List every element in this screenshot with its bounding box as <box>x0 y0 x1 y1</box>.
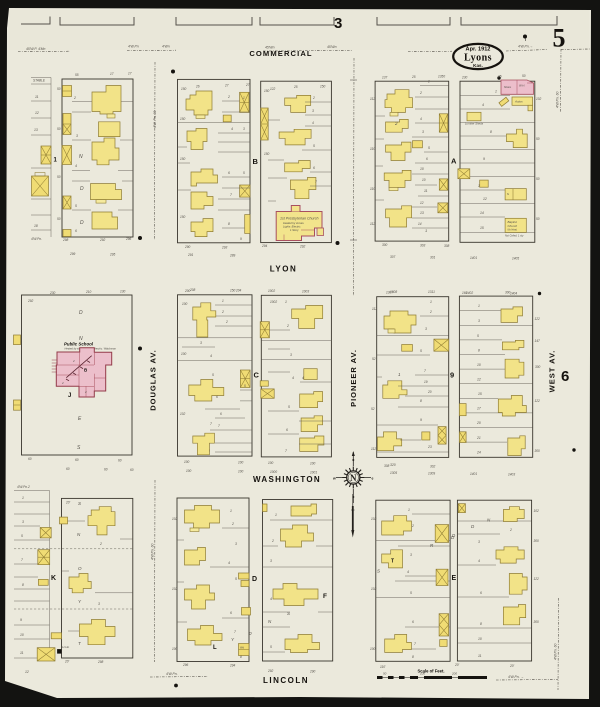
svg-text:N: N <box>79 154 83 160</box>
svg-text:e: e <box>372 477 374 481</box>
svg-text:2: 2 <box>429 310 432 314</box>
svg-text:4: 4 <box>478 559 480 563</box>
svg-text:3: 3 <box>243 127 245 131</box>
svg-text:B: B <box>253 157 259 166</box>
svg-text:3: 3 <box>76 134 78 138</box>
svg-text:6: 6 <box>228 171 230 175</box>
svg-text:45'W.P. 4'Mn: 45'W.P. 4'Mn <box>26 47 45 51</box>
svg-text:110: 110 <box>370 187 375 191</box>
svg-text:Lt.Ho: Lt.Ho <box>62 645 70 649</box>
svg-text:8: 8 <box>490 130 492 134</box>
svg-text:5: 5 <box>212 373 214 377</box>
svg-text:300: 300 <box>535 365 541 369</box>
svg-text:112: 112 <box>370 222 375 226</box>
svg-text:1000: 1000 <box>270 470 277 474</box>
svg-text:3: 3 <box>22 520 24 524</box>
svg-text:112: 112 <box>372 307 377 311</box>
svg-text:1002: 1002 <box>268 289 275 293</box>
svg-text:50: 50 <box>536 217 540 221</box>
svg-text:5: 5 <box>477 334 479 338</box>
svg-text:1: 1 <box>22 496 24 500</box>
svg-text:294: 294 <box>261 244 268 248</box>
svg-text:122: 122 <box>534 577 540 581</box>
svg-text:300: 300 <box>534 539 540 543</box>
svg-text:1st Presbyterian Church: 1st Presbyterian Church <box>280 217 319 221</box>
svg-text:4: 4 <box>420 117 422 121</box>
svg-text:2: 2 <box>227 95 230 99</box>
svg-text:300: 300 <box>382 243 388 247</box>
svg-text:5: 5 <box>313 144 315 148</box>
svg-text:6: 6 <box>412 620 414 624</box>
svg-text:208: 208 <box>189 288 196 292</box>
svg-text:122: 122 <box>535 399 541 403</box>
svg-text:8: 8 <box>412 655 414 659</box>
svg-text:DOUGLAS AV.: DOUGLAS AV. <box>149 349 158 411</box>
svg-text:PIONEER AV.: PIONEER AV. <box>349 349 358 407</box>
svg-text:45'Wn: 45'Wn <box>265 46 275 50</box>
svg-text:Church: Church <box>508 224 518 228</box>
svg-text:1: 1 <box>425 228 427 233</box>
svg-text:3: 3 <box>422 130 424 134</box>
svg-text:308: 308 <box>384 464 390 468</box>
svg-text:24: 24 <box>476 451 481 455</box>
svg-text:1: 1 <box>230 509 232 513</box>
svg-text:102: 102 <box>371 517 377 521</box>
svg-text:12: 12 <box>483 197 487 201</box>
svg-text:4: 4 <box>210 354 212 358</box>
svg-text:102: 102 <box>371 587 377 591</box>
svg-text:50: 50 <box>522 74 526 78</box>
svg-text:7: 7 <box>230 193 232 197</box>
svg-text:1: 1 <box>478 304 480 308</box>
svg-text:150: 150 <box>264 152 270 156</box>
svg-text:50: 50 <box>57 127 61 131</box>
svg-text:3: 3 <box>200 341 202 345</box>
svg-text:296: 296 <box>182 663 189 667</box>
svg-text:1350: 1350 <box>438 75 445 79</box>
svg-text:1002: 1002 <box>270 300 277 304</box>
svg-text:11: 11 <box>20 651 24 655</box>
svg-text:50: 50 <box>57 217 61 221</box>
svg-text:1311: 1311 <box>428 290 435 294</box>
svg-text:8: 8 <box>228 222 230 226</box>
svg-text:11: 11 <box>424 189 428 193</box>
svg-text:STABLE: STABLE <box>33 79 46 83</box>
svg-text:1308: 1308 <box>390 290 397 294</box>
svg-text:100: 100 <box>420 672 425 676</box>
svg-text:6: 6 <box>286 428 288 432</box>
svg-text:3: 3 <box>478 319 480 323</box>
svg-text:T: T <box>391 559 394 565</box>
svg-text:100: 100 <box>310 462 316 466</box>
svg-text:COMMERCIAL: COMMERCIAL <box>249 49 312 58</box>
svg-text:60: 60 <box>28 457 32 461</box>
svg-text:298: 298 <box>97 660 104 664</box>
svg-text:1: 1 <box>408 508 410 512</box>
svg-text:8: 8 <box>22 583 24 587</box>
svg-text:302: 302 <box>430 465 436 469</box>
svg-text:130: 130 <box>120 290 126 294</box>
svg-text:60: 60 <box>118 459 122 463</box>
svg-text:2: 2 <box>84 390 87 394</box>
svg-text:1: 1 <box>495 90 497 94</box>
svg-text:11: 11 <box>478 654 482 658</box>
svg-text:Not Ceiled. 1 sty: Not Ceiled. 1 sty <box>505 235 524 238</box>
svg-text:LINCOLN: LINCOLN <box>263 676 309 685</box>
svg-text:4'W. Pn. 60: 4'W. Pn. 60 <box>153 111 157 128</box>
svg-text:10: 10 <box>477 363 481 367</box>
svg-text:137: 137 <box>382 76 388 80</box>
svg-text:2: 2 <box>286 324 289 328</box>
svg-text:D: D <box>252 576 257 583</box>
svg-text:50: 50 <box>57 175 61 179</box>
svg-text:230: 230 <box>49 291 56 295</box>
svg-text:6: 6 <box>313 166 315 170</box>
svg-text:7: 7 <box>21 558 23 562</box>
svg-text:50: 50 <box>536 177 540 181</box>
svg-text:1: 1 <box>243 96 245 100</box>
svg-text:6: 6 <box>220 412 222 416</box>
svg-text:4'W.Pn.: 4'W.Pn. <box>31 237 42 241</box>
svg-text:4: 4 <box>302 376 304 380</box>
svg-text:204: 204 <box>235 289 242 293</box>
svg-text:50: 50 <box>383 672 387 676</box>
svg-text:Autos: Autos <box>514 100 523 104</box>
svg-text:No Heat.: No Heat. <box>508 229 518 232</box>
svg-text:4'W.Pn.: 4'W.Pn. <box>166 672 178 676</box>
svg-text:4'W.Pn. →: 4'W.Pn. → <box>508 675 524 679</box>
svg-text:2: 2 <box>225 320 228 324</box>
svg-text:W.H.: W.H. <box>519 84 525 88</box>
svg-text:6: 6 <box>480 591 482 595</box>
svg-text:1 Story: 1 Story <box>290 228 299 232</box>
svg-text:5: 5 <box>428 146 430 150</box>
svg-text:3: 3 <box>410 553 412 557</box>
svg-text:150: 150 <box>230 289 236 293</box>
svg-text:7: 7 <box>285 449 287 453</box>
svg-text:L: L <box>213 645 217 651</box>
svg-text:F: F <box>323 593 327 600</box>
svg-text:12: 12 <box>35 111 39 115</box>
svg-text:303: 303 <box>420 244 426 248</box>
svg-text:S: S <box>78 501 81 506</box>
svg-text:60: 60 <box>104 468 108 472</box>
svg-text:25: 25 <box>411 75 416 79</box>
svg-text:E: E <box>452 575 457 582</box>
svg-text:15: 15 <box>478 392 482 396</box>
svg-text:Kas.: Kas. <box>473 63 483 68</box>
svg-text:20': 20' <box>509 664 515 668</box>
svg-text:1405: 1405 <box>512 257 519 261</box>
svg-text:150: 150 <box>180 215 186 219</box>
svg-text:50: 50 <box>57 87 61 91</box>
svg-text:4: 4 <box>292 376 294 380</box>
svg-text:27: 27 <box>245 83 250 87</box>
svg-text:55: 55 <box>75 73 79 77</box>
svg-text:WEST AV.: WEST AV. <box>548 350 557 393</box>
svg-text:5: 5 <box>244 384 246 388</box>
svg-text:20': 20' <box>454 663 460 667</box>
svg-text:4'W.Pn. 60: 4'W.Pn. 60 <box>151 544 155 560</box>
svg-text:5: 5 <box>21 534 23 538</box>
svg-text:150: 150 <box>320 85 326 89</box>
svg-text:18: 18 <box>34 224 38 228</box>
svg-text:20': 20' <box>65 501 71 505</box>
svg-text:5: 5 <box>288 405 290 409</box>
svg-text:100: 100 <box>182 302 188 306</box>
svg-text:A: A <box>451 157 457 166</box>
svg-text:150: 150 <box>264 89 270 93</box>
svg-text:2: 2 <box>72 359 75 363</box>
svg-text:102: 102 <box>180 412 186 416</box>
svg-text:300: 300 <box>534 620 540 624</box>
svg-text:N: N <box>350 473 357 483</box>
svg-text:J: J <box>68 393 71 399</box>
svg-text:112: 112 <box>371 447 376 451</box>
svg-text:1: 1 <box>275 513 277 517</box>
svg-text:25: 25 <box>497 75 502 79</box>
svg-text:15: 15 <box>480 226 484 230</box>
svg-text:4'W.Pn.→: 4'W.Pn.→ <box>518 45 533 49</box>
svg-text:1404: 1404 <box>510 292 517 296</box>
svg-text:1: 1 <box>285 300 287 304</box>
svg-text:4: 4 <box>228 561 230 565</box>
svg-text:5: 5 <box>75 204 77 208</box>
svg-text:100: 100 <box>184 460 190 464</box>
svg-text:S: S <box>377 569 380 574</box>
svg-text:1001: 1001 <box>310 471 317 475</box>
svg-text:147: 147 <box>535 339 541 343</box>
svg-text:50: 50 <box>536 137 540 141</box>
svg-text:Lyons: Lyons <box>464 53 492 64</box>
svg-text:200: 200 <box>451 672 457 676</box>
svg-text:1401: 1401 <box>470 472 477 476</box>
svg-text:4'Wn: 4'Wn <box>162 45 170 49</box>
svg-text:13: 13 <box>34 128 38 132</box>
svg-text:9: 9 <box>483 157 485 161</box>
svg-text:150: 150 <box>180 157 186 161</box>
svg-text:150: 150 <box>181 87 187 91</box>
svg-text:291: 291 <box>187 253 194 257</box>
svg-text:210: 210 <box>85 290 92 294</box>
svg-text:10: 10 <box>478 637 482 641</box>
svg-text:Lumber Sheds: Lumber Sheds <box>465 122 484 126</box>
svg-text:Public School: Public School <box>64 342 94 347</box>
svg-text:102: 102 <box>536 97 542 101</box>
svg-text:4: 4 <box>312 121 314 125</box>
svg-text:3: 3 <box>290 353 292 357</box>
svg-text:1: 1 <box>428 80 430 84</box>
svg-text:14: 14 <box>418 222 422 226</box>
svg-text:308: 308 <box>444 244 450 248</box>
svg-text:2: 2 <box>231 522 234 526</box>
svg-text:1003: 1003 <box>302 290 309 294</box>
svg-text:C: C <box>254 371 260 380</box>
svg-text:4'W.Pn. 60: 4'W.Pn. 60 <box>556 92 560 108</box>
svg-text:6: 6 <box>230 611 232 615</box>
svg-text:O: O <box>78 566 82 571</box>
svg-text:110': 110' <box>380 665 386 669</box>
svg-text:290: 290 <box>309 670 316 674</box>
svg-text:52: 52 <box>372 357 376 361</box>
svg-text:10: 10 <box>20 633 24 637</box>
svg-text:2: 2 <box>221 310 224 314</box>
svg-text:1: 1 <box>222 299 224 303</box>
svg-text:w: w <box>332 477 336 481</box>
svg-text:1309: 1309 <box>428 472 435 476</box>
svg-text:7: 7 <box>315 180 317 184</box>
svg-text:3: 3 <box>478 540 480 544</box>
svg-text:122: 122 <box>535 317 541 321</box>
svg-text:5: 5 <box>235 577 237 581</box>
svg-text:20: 20 <box>427 390 432 394</box>
svg-text:4: 4 <box>407 570 409 574</box>
svg-text:6: 6 <box>561 368 569 385</box>
svg-text:307: 307 <box>390 255 396 259</box>
svg-text:5: 5 <box>270 645 272 649</box>
svg-text:292: 292 <box>27 299 34 303</box>
svg-text:K: K <box>51 575 56 582</box>
svg-text:S: S <box>287 611 290 616</box>
svg-text:12: 12 <box>420 201 424 205</box>
svg-text:122: 122 <box>270 87 276 91</box>
svg-text:21: 21 <box>476 436 481 440</box>
svg-text:Wd: Wd <box>240 646 244 650</box>
svg-text:300: 300 <box>535 449 541 453</box>
svg-text:17: 17 <box>110 72 114 76</box>
svg-text:10: 10 <box>420 167 424 171</box>
svg-text:23: 23 <box>427 445 432 449</box>
svg-text:11: 11 <box>35 95 39 99</box>
svg-text:17: 17 <box>477 407 481 411</box>
svg-text:9: 9 <box>240 237 242 241</box>
svg-text:D: D <box>80 186 84 192</box>
svg-text:4: 4 <box>75 164 77 168</box>
svg-text:100: 100 <box>238 461 244 465</box>
svg-text:12: 12 <box>477 378 481 382</box>
svg-text:150: 150 <box>180 117 186 121</box>
svg-text:8: 8 <box>420 399 422 403</box>
svg-text:9: 9 <box>450 371 454 380</box>
svg-text:4: 4 <box>482 103 484 107</box>
svg-text:290: 290 <box>184 245 191 249</box>
svg-text:2: 2 <box>61 381 64 385</box>
svg-text:112: 112 <box>370 97 375 101</box>
svg-text:292: 292 <box>99 238 106 242</box>
svg-text:12: 12 <box>25 670 29 674</box>
svg-text:3: 3 <box>425 327 427 331</box>
svg-text:100: 100 <box>268 461 274 465</box>
svg-text:4'W.Pn.2: 4'W.Pn.2 <box>17 485 30 489</box>
svg-text:Store: Store <box>504 85 512 89</box>
svg-text:8: 8 <box>480 622 482 626</box>
svg-text:7: 7 <box>234 630 236 634</box>
svg-text:102: 102 <box>534 509 540 513</box>
svg-text:4: 4 <box>231 127 233 131</box>
svg-text:3: 3 <box>270 559 272 563</box>
svg-text:2: 2 <box>419 91 422 95</box>
svg-text:8: 8 <box>478 349 480 353</box>
svg-text:5: 5 <box>410 591 412 595</box>
svg-text:298: 298 <box>62 238 69 242</box>
svg-text:4'W.Pn. 60: 4'W.Pn. 60 <box>554 644 558 660</box>
svg-text:7: 7 <box>424 369 426 373</box>
svg-text:100: 100 <box>370 647 376 651</box>
svg-text:100: 100 <box>172 647 178 651</box>
svg-text:295: 295 <box>109 253 116 257</box>
svg-text:25: 25 <box>293 85 298 89</box>
svg-text:301: 301 <box>430 256 436 260</box>
svg-text:45'Wn: 45'Wn <box>327 45 337 49</box>
svg-text:D: D <box>80 220 84 226</box>
svg-text:Lights: Electric: Lights: Electric <box>283 225 301 229</box>
svg-text:296: 296 <box>125 237 132 241</box>
svg-text:5: 5 <box>553 24 566 53</box>
svg-text:6: 6 <box>75 229 77 233</box>
svg-text:Heated by stoves: Heated by stoves <box>283 221 304 225</box>
svg-text:100: 100 <box>238 470 244 474</box>
svg-text:292: 292 <box>299 245 306 249</box>
svg-text:1305: 1305 <box>390 471 397 475</box>
svg-text:S: S <box>507 192 509 196</box>
svg-text:1403: 1403 <box>508 473 515 477</box>
svg-text:60: 60 <box>75 458 79 462</box>
svg-text:5: 5 <box>420 349 422 353</box>
svg-text:4'W.Pn: 4'W.Pn <box>128 45 139 49</box>
svg-text:60: 60 <box>66 467 70 471</box>
svg-text:9: 9 <box>20 618 22 622</box>
svg-text:D: D <box>79 310 83 316</box>
svg-text:26: 26 <box>195 85 200 89</box>
svg-text:17: 17 <box>128 72 132 76</box>
svg-text:3: 3 <box>98 602 100 606</box>
svg-text:100: 100 <box>186 469 192 473</box>
svg-text:7: 7 <box>414 642 416 646</box>
svg-text:5: 5 <box>243 171 245 175</box>
svg-text:6: 6 <box>426 157 428 161</box>
svg-text:3: 3 <box>312 109 314 113</box>
svg-text:1402: 1402 <box>466 291 473 295</box>
svg-text:WASHINGTON: WASHINGTON <box>253 475 321 484</box>
svg-text:2: 2 <box>509 528 512 532</box>
svg-text:3: 3 <box>334 15 342 32</box>
svg-text:1: 1 <box>430 300 432 304</box>
svg-text:110: 110 <box>370 147 375 151</box>
svg-text:14: 14 <box>480 211 484 215</box>
svg-text:100: 100 <box>181 352 187 356</box>
svg-text:13: 13 <box>420 211 424 215</box>
svg-text:60: 60 <box>130 468 134 472</box>
svg-text:20': 20' <box>64 660 70 664</box>
svg-text:10: 10 <box>422 178 426 182</box>
svg-text:2: 2 <box>312 96 315 100</box>
svg-text:7: 7 <box>210 422 212 426</box>
svg-text:2: 2 <box>394 121 398 126</box>
svg-text:102: 102 <box>172 587 178 591</box>
svg-text:230: 230 <box>461 76 468 80</box>
svg-text:9: 9 <box>420 418 422 422</box>
svg-text:2: 2 <box>271 539 274 543</box>
svg-text:2: 2 <box>99 542 102 546</box>
svg-text:292: 292 <box>267 669 274 673</box>
svg-text:LYON: LYON <box>270 265 298 274</box>
svg-text:19: 19 <box>424 380 428 384</box>
svg-text:293: 293 <box>221 246 228 250</box>
svg-text:27: 27 <box>224 84 229 88</box>
svg-text:7: 7 <box>218 424 220 428</box>
svg-text:3: 3 <box>235 542 237 546</box>
svg-text:289: 289 <box>229 254 236 258</box>
